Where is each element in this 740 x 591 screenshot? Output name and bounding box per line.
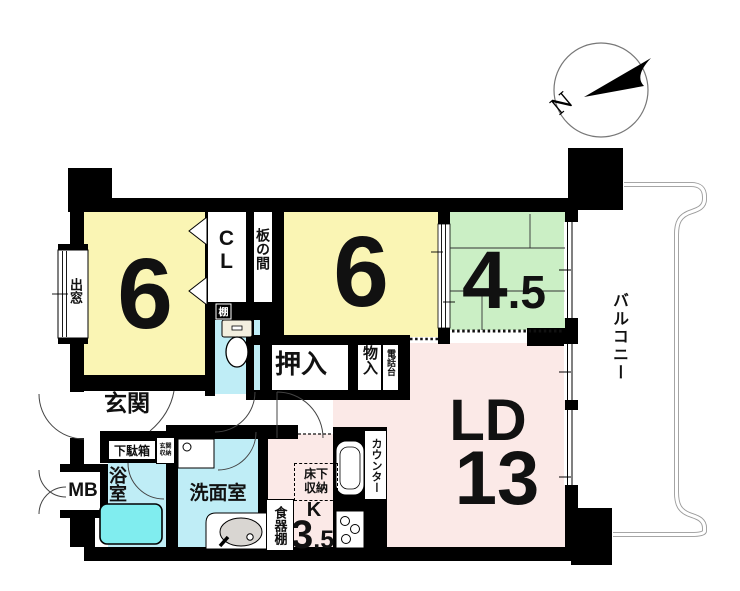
balcony-label: バルコニー: [610, 292, 626, 432]
kitchen-sink-icon: [336, 441, 364, 495]
toilet-shelf: 棚: [216, 304, 231, 319]
bathroom-label: 浴室: [108, 466, 126, 502]
sliding-door: [431, 224, 455, 328]
entry-door-arc: [39, 394, 84, 439]
bay-window-label: 出窓: [69, 278, 82, 304]
entrance-label: 玄関: [95, 392, 159, 415]
bathroom-door-arc: [128, 463, 164, 499]
stove-icon: [336, 511, 364, 548]
washroom-label: 洗面室: [180, 484, 256, 503]
entrance-storage-box: 玄関収納: [156, 437, 175, 464]
meter-box-door-arc-bottom: [39, 487, 66, 514]
room-size-ld: 13: [442, 441, 552, 517]
washroom-door-arc: [218, 432, 256, 470]
toilet-shelf-label: 棚: [219, 306, 229, 319]
washer-pan-icon: [178, 439, 214, 468]
compass: N: [546, 43, 651, 137]
window-living-upper: [559, 344, 578, 400]
room-size-bedroom-center: 6: [311, 222, 411, 322]
toilet-door-arc: [215, 392, 255, 432]
counter-strip: カウンター: [365, 431, 386, 499]
room-size-kitchen: 3 .5: [291, 515, 334, 555]
shoe-cabinet-box: 下駄箱: [108, 440, 156, 460]
phone-stand-label: 電話台: [386, 349, 395, 376]
room-size-tatami-int: 4: [462, 240, 508, 322]
wood-floor-label: 板の間: [256, 228, 270, 270]
hall-ld-door-arc: [277, 392, 323, 438]
meter-box-label: MB: [66, 481, 100, 500]
window-living-lower: [559, 410, 578, 485]
entrance-storage-label: 玄関収納: [159, 444, 172, 457]
room-size-tatami-dec: .5: [508, 269, 546, 315]
meter-box-door-arc-top: [39, 470, 66, 497]
storage-label: 物入: [362, 345, 377, 375]
bathtub-icon: [100, 504, 162, 544]
closet-cl-label: CL: [216, 227, 237, 273]
toilet-icon: [222, 320, 252, 367]
cupboard-label: 食器棚: [271, 506, 290, 545]
oshiire-label: 押入: [251, 351, 351, 377]
underfloor-storage-box: 床下収納: [294, 463, 338, 501]
room-size-kitchen-dec: .5: [313, 528, 334, 553]
room-size-tatami: 4 .5: [462, 240, 546, 322]
window-tatami-room: [559, 222, 578, 318]
underfloor-storage-label: 床下収納: [303, 468, 329, 496]
cupboard-box: 食器棚: [266, 499, 294, 551]
room-size-bedroom-left: 6: [95, 244, 195, 344]
room-size-kitchen-int: 3: [291, 515, 313, 555]
shoe-cabinet-label: 下駄箱: [114, 442, 150, 459]
counter-label: カウンター: [370, 438, 381, 493]
floor-plan: N: [0, 0, 740, 591]
